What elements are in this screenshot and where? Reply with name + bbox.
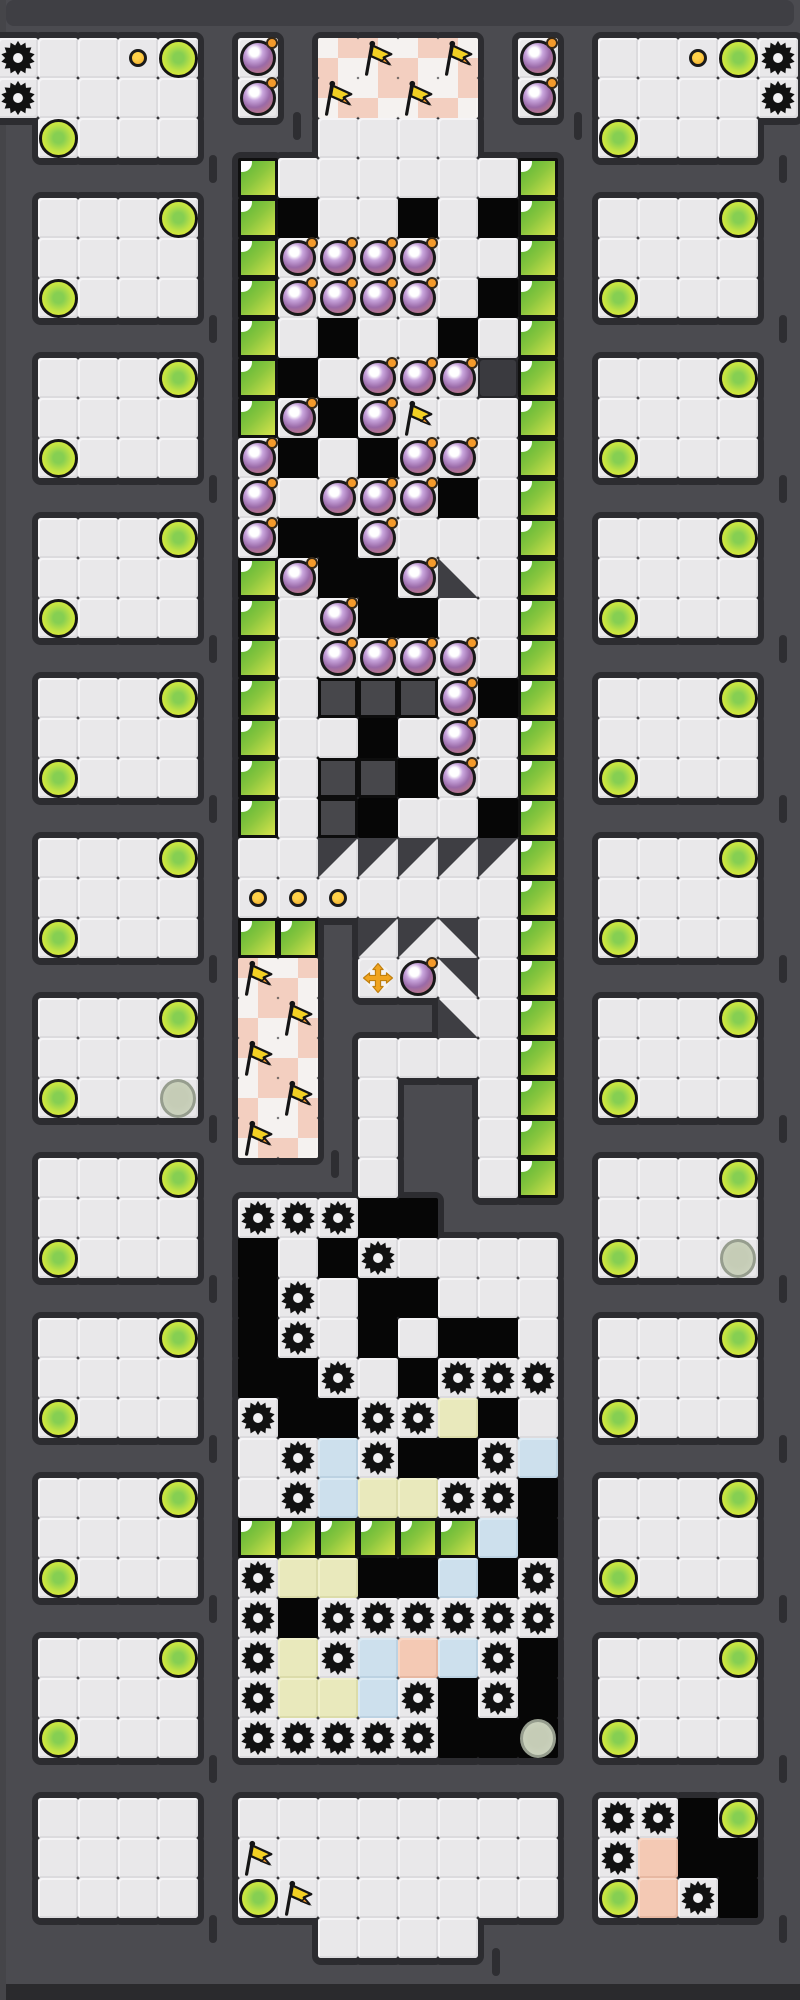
floor-tile bbox=[598, 1518, 638, 1558]
floor-tile bbox=[278, 718, 318, 758]
bomb bbox=[318, 598, 358, 638]
yellow-tile bbox=[318, 1678, 358, 1718]
bomb-icon bbox=[320, 480, 356, 516]
wall-tile bbox=[478, 1318, 518, 1358]
green-block bbox=[518, 958, 558, 998]
bomb-fuse-icon bbox=[306, 397, 318, 409]
gear-icon bbox=[239, 1639, 277, 1677]
floor-tile bbox=[38, 358, 78, 398]
block-shine bbox=[278, 1518, 292, 1532]
spike-slope-icon bbox=[438, 958, 478, 998]
bomb-fuse-icon bbox=[346, 477, 358, 489]
rock-block bbox=[398, 678, 438, 718]
floor-tile bbox=[158, 1798, 198, 1838]
floor-tile bbox=[158, 558, 198, 598]
floor-tile bbox=[718, 78, 758, 118]
blue-tile bbox=[358, 1678, 398, 1718]
bomb-icon bbox=[360, 480, 396, 516]
floor-tile bbox=[278, 158, 318, 198]
floor-tile bbox=[678, 1158, 718, 1198]
checker-tile bbox=[278, 1038, 318, 1078]
floor-tile bbox=[598, 518, 638, 558]
block-shine bbox=[238, 358, 252, 372]
floor-tile bbox=[438, 1918, 478, 1958]
floor-tile bbox=[598, 718, 638, 758]
bomb bbox=[518, 78, 558, 118]
block-shine bbox=[238, 758, 252, 772]
block-shine bbox=[518, 878, 532, 892]
floor-tile bbox=[598, 1678, 638, 1718]
wall-tile bbox=[478, 798, 518, 838]
yellow-tile bbox=[278, 1558, 318, 1598]
floor-tile bbox=[438, 238, 478, 278]
block-shine bbox=[238, 158, 252, 172]
bomb-icon bbox=[440, 640, 476, 676]
floor-tile bbox=[718, 758, 758, 798]
green-block bbox=[518, 678, 558, 718]
saw-gear bbox=[358, 1438, 398, 1478]
wall-tile bbox=[318, 318, 358, 358]
floor-tile bbox=[478, 518, 518, 558]
flag-icon bbox=[359, 39, 397, 77]
floor-tile bbox=[38, 1638, 78, 1678]
floor-tile bbox=[678, 1398, 718, 1438]
floor-tile bbox=[358, 1878, 398, 1918]
fruit-orb bbox=[38, 1238, 78, 1278]
floor-tile bbox=[398, 718, 438, 758]
saw-gear bbox=[758, 78, 798, 118]
bomb-icon bbox=[240, 40, 276, 76]
floor-tile bbox=[78, 518, 118, 558]
fruit-orb bbox=[598, 1398, 638, 1438]
fruit-orb-icon bbox=[719, 1319, 758, 1358]
ghost-orb-icon bbox=[520, 1719, 556, 1758]
floor-tile bbox=[438, 398, 478, 438]
block-shine bbox=[518, 1158, 532, 1172]
bomb-icon bbox=[400, 960, 436, 996]
floor-tile bbox=[118, 1558, 158, 1598]
green-block bbox=[518, 598, 558, 638]
green-block bbox=[238, 358, 278, 398]
saw-gear bbox=[478, 1358, 518, 1398]
game-level-map[interactable] bbox=[0, 0, 800, 2000]
floor-tile bbox=[678, 598, 718, 638]
floor-tile bbox=[678, 1238, 718, 1278]
floor-tile bbox=[678, 718, 718, 758]
saw-gear bbox=[638, 1798, 678, 1838]
fruit-orb-icon bbox=[159, 1639, 198, 1678]
floor-tile bbox=[678, 198, 718, 238]
fruit-orb bbox=[38, 1078, 78, 1118]
floor-tile bbox=[118, 758, 158, 798]
floor-tile bbox=[638, 118, 678, 158]
bomb-fuse-icon bbox=[346, 637, 358, 649]
bomb bbox=[438, 438, 478, 478]
fruit-orb bbox=[598, 278, 638, 318]
doorway-tick bbox=[492, 1948, 500, 1976]
bomb bbox=[398, 358, 438, 398]
slope-tile bbox=[438, 998, 478, 1038]
green-block bbox=[238, 598, 278, 638]
floor-tile bbox=[678, 1678, 718, 1718]
wall-tile bbox=[438, 1318, 478, 1358]
floor-tile bbox=[158, 1878, 198, 1918]
checker-tile bbox=[278, 1118, 318, 1158]
floor-tile bbox=[118, 1038, 158, 1078]
gear-icon bbox=[319, 1199, 357, 1237]
fruit-orb bbox=[158, 1318, 198, 1358]
floor-tile bbox=[718, 398, 758, 438]
floor-tile bbox=[158, 278, 198, 318]
doorway-tick bbox=[209, 1275, 217, 1303]
gear-icon bbox=[279, 1279, 317, 1317]
floor-tile bbox=[78, 198, 118, 238]
floor-tile bbox=[38, 1158, 78, 1198]
floor-tile bbox=[638, 438, 678, 478]
wall-tile bbox=[278, 1358, 318, 1398]
gear-icon bbox=[479, 1359, 517, 1397]
floor-tile bbox=[638, 1678, 678, 1718]
saw-gear bbox=[758, 38, 798, 78]
wall-tile bbox=[358, 558, 398, 598]
floor-tile bbox=[638, 38, 678, 78]
block-shine bbox=[278, 918, 292, 932]
floor-tile bbox=[678, 1718, 718, 1758]
floor-tile bbox=[438, 1838, 478, 1878]
bomb-icon bbox=[400, 640, 436, 676]
map-edge-band bbox=[6, 0, 794, 26]
rock-block bbox=[358, 678, 398, 718]
doorway-tick bbox=[209, 1595, 217, 1623]
fruit-orb-icon bbox=[599, 1239, 638, 1278]
wall-tile bbox=[318, 558, 358, 598]
spike-slope-icon bbox=[438, 998, 478, 1038]
floor-tile bbox=[238, 1798, 278, 1838]
floor-tile bbox=[118, 78, 158, 118]
floor-tile bbox=[718, 1558, 758, 1598]
fruit-orb bbox=[718, 198, 758, 238]
saw-gear bbox=[478, 1598, 518, 1638]
green-block bbox=[238, 678, 278, 718]
block-shine bbox=[518, 158, 532, 172]
floor-tile bbox=[478, 238, 518, 278]
floor-tile bbox=[158, 878, 198, 918]
floor-tile bbox=[438, 1238, 478, 1278]
fruit-orb bbox=[158, 838, 198, 878]
wall-tile bbox=[438, 478, 478, 518]
floor-tile bbox=[158, 398, 198, 438]
coin-dot bbox=[278, 878, 318, 918]
flag-icon bbox=[239, 959, 277, 997]
spike-slope-icon bbox=[438, 918, 478, 958]
saw-gear bbox=[238, 1638, 278, 1678]
wall-tile bbox=[238, 1318, 278, 1358]
block-shine bbox=[518, 758, 532, 772]
blue-tile bbox=[318, 1438, 358, 1478]
floor-tile bbox=[478, 638, 518, 678]
floor-tile bbox=[638, 78, 678, 118]
floor-tile bbox=[78, 1838, 118, 1878]
bomb-icon bbox=[440, 440, 476, 476]
floor-tile bbox=[118, 358, 158, 398]
floor-tile bbox=[438, 878, 478, 918]
floor-tile bbox=[438, 278, 478, 318]
fruit-orb bbox=[158, 358, 198, 398]
green-block bbox=[518, 238, 558, 278]
wall-tile bbox=[678, 1798, 718, 1838]
wall-tile bbox=[358, 1318, 398, 1358]
fruit-orb-icon bbox=[39, 1079, 78, 1118]
bomb bbox=[398, 478, 438, 518]
saw-gear bbox=[438, 1598, 478, 1638]
floor-tile bbox=[718, 1718, 758, 1758]
wall-tile bbox=[518, 1638, 558, 1678]
fruit-orb-icon bbox=[39, 1559, 78, 1598]
green-block bbox=[238, 918, 278, 958]
saw-gear bbox=[598, 1798, 638, 1838]
flag-icon bbox=[279, 1079, 317, 1117]
bomb bbox=[278, 238, 318, 278]
block-shine bbox=[238, 198, 252, 212]
gear-icon bbox=[319, 1639, 357, 1677]
bomb bbox=[318, 278, 358, 318]
floor-tile bbox=[398, 1798, 438, 1838]
bomb-icon bbox=[280, 560, 316, 596]
floor-tile bbox=[358, 878, 398, 918]
rock-block bbox=[318, 758, 358, 798]
gear-icon bbox=[359, 1239, 397, 1277]
floor-tile bbox=[78, 38, 118, 78]
block-shine bbox=[438, 1518, 452, 1532]
gear-icon bbox=[479, 1599, 517, 1637]
floor-tile bbox=[718, 1198, 758, 1238]
fruit-orb bbox=[158, 998, 198, 1038]
floor-tile bbox=[38, 838, 78, 878]
saw-gear bbox=[358, 1238, 398, 1278]
wall-tile bbox=[398, 1358, 438, 1398]
flag-icon bbox=[279, 999, 317, 1037]
floor-tile bbox=[478, 1798, 518, 1838]
block-shine bbox=[238, 1518, 252, 1532]
floor-tile bbox=[638, 598, 678, 638]
block-shine bbox=[238, 278, 252, 292]
floor-tile bbox=[38, 38, 78, 78]
saw-gear bbox=[278, 1478, 318, 1518]
doorway-tick bbox=[779, 155, 787, 183]
doorway-tick bbox=[779, 1115, 787, 1143]
fruit-orb bbox=[158, 38, 198, 78]
block-shine bbox=[518, 238, 532, 252]
fruit-orb-icon bbox=[39, 119, 78, 158]
floor-tile bbox=[118, 598, 158, 638]
bomb bbox=[518, 38, 558, 78]
wall-tile bbox=[518, 1478, 558, 1518]
wall-tile bbox=[398, 1558, 438, 1598]
salmon-tile bbox=[638, 1878, 678, 1918]
saw-gear bbox=[318, 1718, 358, 1758]
ghost-orb-icon bbox=[160, 1079, 196, 1118]
floor-tile bbox=[78, 1078, 118, 1118]
floor-tile bbox=[678, 78, 718, 118]
floor-tile bbox=[598, 1318, 638, 1358]
fruit-orb-icon bbox=[599, 279, 638, 318]
block-shine bbox=[518, 518, 532, 532]
gear-icon bbox=[399, 1399, 437, 1437]
floor-tile bbox=[478, 998, 518, 1038]
saw-gear bbox=[358, 1718, 398, 1758]
floor-tile bbox=[118, 198, 158, 238]
floor-tile bbox=[438, 598, 478, 638]
green-block bbox=[518, 358, 558, 398]
map-edge-band bbox=[0, 0, 6, 2000]
fruit-orb bbox=[158, 1158, 198, 1198]
flag bbox=[358, 38, 398, 78]
fruit-orb-icon bbox=[159, 1159, 198, 1198]
saw-gear bbox=[598, 1838, 638, 1878]
floor-tile bbox=[158, 78, 198, 118]
floor-tile bbox=[358, 1358, 398, 1398]
green-block bbox=[238, 718, 278, 758]
fruit-orb-icon bbox=[159, 199, 198, 238]
fruit-orb bbox=[38, 1558, 78, 1598]
floor-tile bbox=[38, 238, 78, 278]
floor-tile bbox=[438, 798, 478, 838]
flag-icon bbox=[239, 1839, 277, 1877]
fruit-orb-icon bbox=[719, 1159, 758, 1198]
saw-gear bbox=[278, 1438, 318, 1478]
gear-icon bbox=[319, 1599, 357, 1637]
wall-tile bbox=[438, 1678, 478, 1718]
fruit-orb bbox=[38, 1718, 78, 1758]
floor-tile bbox=[638, 1318, 678, 1358]
floor-tile bbox=[678, 1198, 718, 1238]
floor-tile bbox=[478, 1038, 518, 1078]
bomb bbox=[318, 238, 358, 278]
bomb-fuse-icon bbox=[466, 437, 478, 449]
wall-tile bbox=[438, 1718, 478, 1758]
fruit-orb bbox=[598, 918, 638, 958]
block-shine bbox=[318, 1518, 332, 1532]
flag bbox=[238, 958, 278, 998]
blue-tile bbox=[318, 1478, 358, 1518]
floor-tile bbox=[638, 1198, 678, 1238]
bomb bbox=[398, 638, 438, 678]
green-block bbox=[518, 278, 558, 318]
green-block bbox=[518, 198, 558, 238]
floor-tile bbox=[598, 1198, 638, 1238]
floor-tile bbox=[78, 1478, 118, 1518]
block-shine bbox=[518, 798, 532, 812]
bomb-icon bbox=[440, 360, 476, 396]
fruit-orb-icon bbox=[39, 1719, 78, 1758]
floor-tile bbox=[158, 1358, 198, 1398]
floor-tile bbox=[158, 1558, 198, 1598]
saw-gear bbox=[398, 1398, 438, 1438]
floor-tile bbox=[38, 678, 78, 718]
floor-tile bbox=[638, 278, 678, 318]
floor-tile bbox=[38, 78, 78, 118]
coin-dot bbox=[318, 878, 358, 918]
floor-tile bbox=[478, 318, 518, 358]
bomb-fuse-icon bbox=[386, 277, 398, 289]
wall-tile bbox=[358, 438, 398, 478]
floor-tile bbox=[358, 1798, 398, 1838]
floor-tile bbox=[638, 758, 678, 798]
flag bbox=[398, 78, 438, 118]
floor-tile bbox=[718, 118, 758, 158]
floor-tile bbox=[78, 1718, 118, 1758]
floor-tile bbox=[158, 1518, 198, 1558]
block-shine bbox=[518, 1038, 532, 1052]
bomb-fuse-icon bbox=[426, 437, 438, 449]
floor-tile bbox=[438, 1878, 478, 1918]
blue-tile bbox=[358, 1638, 398, 1678]
fruit-orb bbox=[598, 1718, 638, 1758]
floor-tile bbox=[678, 1478, 718, 1518]
flag-icon bbox=[399, 399, 437, 437]
yellow-tile bbox=[318, 1558, 358, 1598]
bomb-icon bbox=[360, 640, 396, 676]
bomb-fuse-icon bbox=[266, 77, 278, 89]
ghost-orb bbox=[518, 1718, 558, 1758]
floor-tile bbox=[398, 878, 438, 918]
doorway-tick bbox=[209, 155, 217, 183]
doorway-tick bbox=[574, 112, 582, 140]
floor-tile bbox=[38, 398, 78, 438]
green-block bbox=[238, 798, 278, 838]
fruit-orb-icon bbox=[39, 279, 78, 318]
floor-tile bbox=[78, 598, 118, 638]
floor-tile bbox=[118, 1838, 158, 1878]
bomb bbox=[238, 38, 278, 78]
salmon-tile bbox=[638, 1838, 678, 1878]
slope-tile bbox=[318, 838, 358, 878]
gear-icon bbox=[0, 39, 37, 77]
gear-icon bbox=[239, 1679, 277, 1717]
green-block bbox=[518, 1118, 558, 1158]
floor-tile bbox=[438, 518, 478, 558]
floor-tile bbox=[158, 1198, 198, 1238]
bomb-fuse-icon bbox=[346, 597, 358, 609]
bomb-icon bbox=[320, 240, 356, 276]
doorway-tick bbox=[209, 1115, 217, 1143]
wall-tile bbox=[358, 1198, 398, 1238]
fruit-orb bbox=[598, 1078, 638, 1118]
floor-tile bbox=[678, 1358, 718, 1398]
floor-tile bbox=[678, 438, 718, 478]
floor-tile bbox=[398, 1838, 438, 1878]
bomb bbox=[238, 518, 278, 558]
block-shine bbox=[238, 918, 252, 932]
floor-tile bbox=[438, 118, 478, 158]
block-shine bbox=[238, 238, 252, 252]
checker-tile bbox=[358, 78, 398, 118]
floor-tile bbox=[358, 198, 398, 238]
floor-tile bbox=[238, 1438, 278, 1478]
flag bbox=[398, 398, 438, 438]
bomb bbox=[358, 358, 398, 398]
floor-tile bbox=[158, 1238, 198, 1278]
move-cross bbox=[358, 958, 398, 998]
floor-tile bbox=[78, 1038, 118, 1078]
floor-tile bbox=[278, 318, 318, 358]
bomb-fuse-icon bbox=[426, 957, 438, 969]
bomb bbox=[358, 518, 398, 558]
bomb bbox=[238, 78, 278, 118]
floor-tile bbox=[398, 158, 438, 198]
gear-icon bbox=[639, 1799, 677, 1837]
move-cross-icon bbox=[361, 961, 395, 995]
